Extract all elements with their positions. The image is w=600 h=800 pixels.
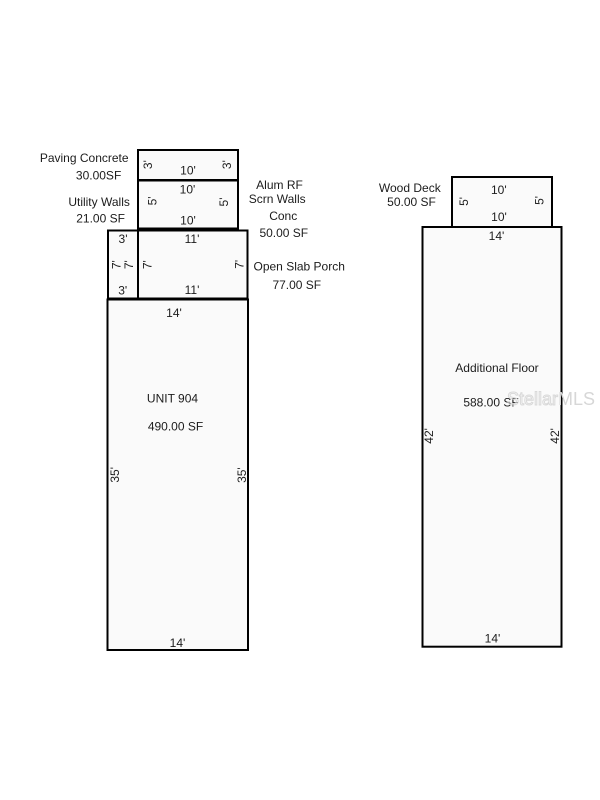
svg-text:10': 10' [180,164,196,178]
svg-text:35': 35' [108,467,122,483]
svg-text:50.00 SF: 50.00 SF [259,226,308,240]
svg-text:14': 14' [166,306,182,320]
svg-text:Paving Concrete: Paving Concrete [40,151,129,165]
svg-text:5': 5' [145,196,159,205]
svg-text:3': 3' [118,283,127,297]
svg-text:14': 14' [489,229,505,243]
svg-text:11': 11' [185,232,200,246]
svg-text:3': 3' [141,160,155,169]
svg-text:14': 14' [485,632,501,646]
svg-text:3': 3' [220,160,234,169]
svg-text:3': 3' [119,232,128,246]
svg-text:Open Slab Porch: Open Slab Porch [254,259,345,273]
svg-text:50.00 SF: 50.00 SF [387,195,436,209]
svg-text:11': 11' [185,283,200,297]
svg-text:Additional Floor: Additional Floor [455,361,538,375]
svg-text:Utility Walls: Utility Walls [68,195,130,209]
svg-text:14': 14' [170,636,186,650]
svg-text:42': 42' [548,428,562,444]
svg-text:30.00SF: 30.00SF [76,168,121,182]
svg-text:MLS: MLS [558,389,595,409]
svg-text:5': 5' [533,196,547,205]
svg-text:35': 35' [235,467,249,483]
svg-text:5': 5' [457,197,471,206]
svg-text:UNIT 904: UNIT 904 [147,391,198,405]
svg-text:Conc: Conc [269,209,297,223]
svg-text:10': 10' [180,213,196,227]
svg-text:10': 10' [180,183,196,197]
svg-text:21.00 SF: 21.00 SF [76,211,125,225]
svg-text:7': 7' [232,260,246,269]
svg-text:5': 5' [217,198,231,207]
svg-text:Stellar: Stellar [507,389,558,409]
svg-text:7': 7' [122,260,136,269]
svg-text:Alum RF: Alum RF [256,178,303,192]
svg-text:Wood Deck: Wood Deck [379,181,442,195]
svg-text:10': 10' [491,183,507,197]
svg-text:77.00 SF: 77.00 SF [272,278,321,292]
svg-text:490.00 SF: 490.00 SF [148,419,203,433]
svg-text:10': 10' [491,210,507,224]
svg-text:42': 42' [422,428,436,444]
svg-text:7': 7' [140,260,154,269]
svg-text:Scrn Walls: Scrn Walls [249,192,306,206]
